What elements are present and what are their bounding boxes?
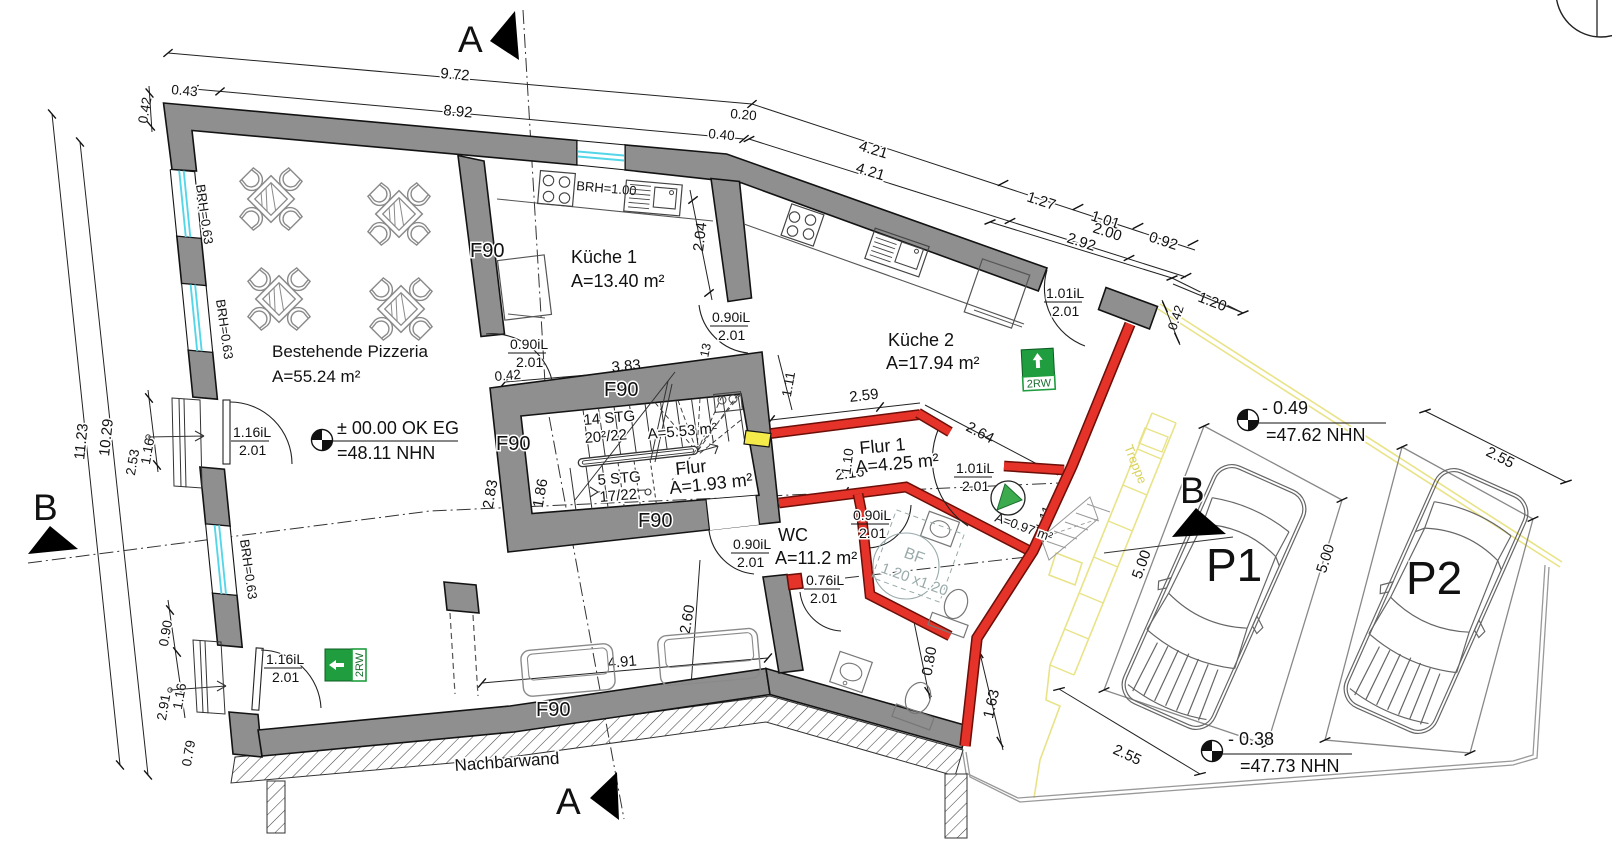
svg-text:WC: WC xyxy=(778,525,808,545)
svg-text:A=11.2 m²: A=11.2 m² xyxy=(775,548,857,568)
svg-text:B: B xyxy=(1180,470,1205,511)
svg-text:- 0.38: - 0.38 xyxy=(1228,729,1274,749)
svg-text:2.01: 2.01 xyxy=(737,554,764,570)
svg-text:1.16iL: 1.16iL xyxy=(233,424,271,440)
svg-text:A=55.24 m²: A=55.24 m² xyxy=(272,367,361,386)
svg-text:0.90iL: 0.90iL xyxy=(712,309,750,325)
svg-text:Bestehende Pizzeria: Bestehende Pizzeria xyxy=(272,342,428,361)
svg-text:Küche 2: Küche 2 xyxy=(888,330,954,350)
svg-text:2.01: 2.01 xyxy=(718,327,745,343)
svg-text:=48.11 NHN: =48.11 NHN xyxy=(337,443,435,463)
svg-text:0.90iL: 0.90iL xyxy=(510,336,548,352)
svg-text:A=17.94 m²: A=17.94 m² xyxy=(886,353,980,373)
svg-text:0.90iL: 0.90iL xyxy=(853,507,891,523)
svg-text:8.92: 8.92 xyxy=(443,102,474,121)
svg-text:1.01iL: 1.01iL xyxy=(1046,285,1084,301)
svg-text:Küche 1: Küche 1 xyxy=(571,247,637,267)
svg-text:0.76iL: 0.76iL xyxy=(806,572,844,588)
svg-text:2.01: 2.01 xyxy=(272,669,299,685)
svg-text:9.72: 9.72 xyxy=(440,65,471,84)
svg-text:1.16iL: 1.16iL xyxy=(266,651,304,667)
svg-text:0.43: 0.43 xyxy=(171,82,198,99)
svg-text:0.40: 0.40 xyxy=(708,126,735,143)
svg-text:2RW: 2RW xyxy=(1027,377,1052,390)
svg-text:4.91: 4.91 xyxy=(607,653,638,672)
svg-text:2.01: 2.01 xyxy=(962,478,989,494)
svg-text:± 00.00 OK EG: ± 00.00 OK EG xyxy=(337,418,459,438)
svg-text:2RW: 2RW xyxy=(354,652,366,677)
svg-text:2.01: 2.01 xyxy=(1052,303,1079,319)
svg-text:1.01iL: 1.01iL xyxy=(956,460,994,476)
svg-text:=47.62 NHN: =47.62 NHN xyxy=(1266,425,1366,445)
svg-text:F90: F90 xyxy=(536,699,570,721)
svg-text:F90: F90 xyxy=(638,510,672,532)
svg-text:0.20: 0.20 xyxy=(730,106,757,123)
svg-text:F90: F90 xyxy=(470,240,504,262)
svg-text:2.01: 2.01 xyxy=(516,354,543,370)
svg-text:=47.73 NHN: =47.73 NHN xyxy=(1240,756,1340,776)
svg-text:0.90iL: 0.90iL xyxy=(733,536,771,552)
svg-text:P1: P1 xyxy=(1206,539,1262,591)
svg-text:2.04: 2.04 xyxy=(690,221,710,252)
svg-text:P2: P2 xyxy=(1406,552,1462,604)
svg-text:B: B xyxy=(33,487,58,528)
svg-text:F90: F90 xyxy=(604,379,638,401)
svg-text:1.10: 1.10 xyxy=(838,447,856,475)
svg-text:2.01: 2.01 xyxy=(859,525,886,541)
svg-text:2.01: 2.01 xyxy=(810,590,837,606)
svg-text:A: A xyxy=(458,19,483,60)
svg-text:A: A xyxy=(556,781,581,822)
svg-text:17/22: 17/22 xyxy=(599,486,638,506)
svg-text:2.59: 2.59 xyxy=(848,386,879,406)
svg-text:- 0.49: - 0.49 xyxy=(1262,398,1308,418)
svg-text:2.01: 2.01 xyxy=(239,442,266,458)
svg-text:A=13.40 m²: A=13.40 m² xyxy=(571,271,665,291)
svg-text:F90: F90 xyxy=(496,433,530,455)
